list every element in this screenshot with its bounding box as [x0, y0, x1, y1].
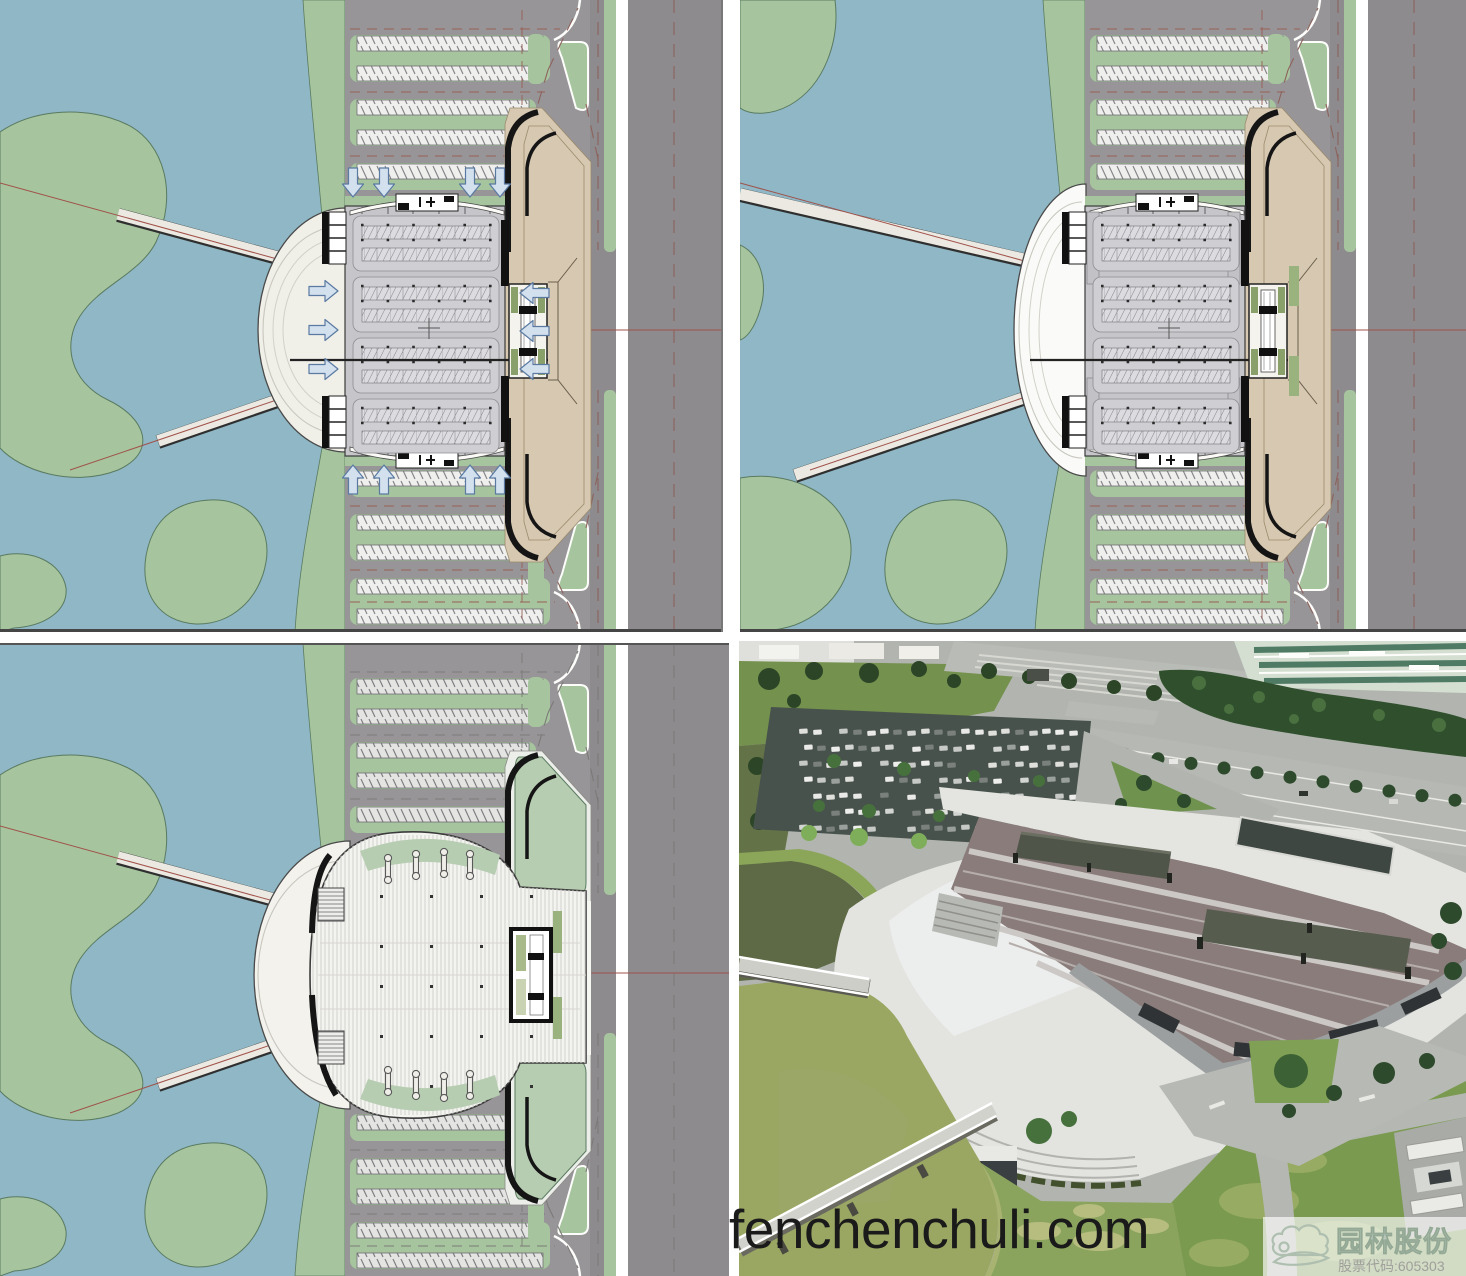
svg-text:股票代码:605303: 股票代码:605303	[1338, 1258, 1445, 1274]
svg-text:园林股份: 园林股份	[1336, 1226, 1452, 1257]
